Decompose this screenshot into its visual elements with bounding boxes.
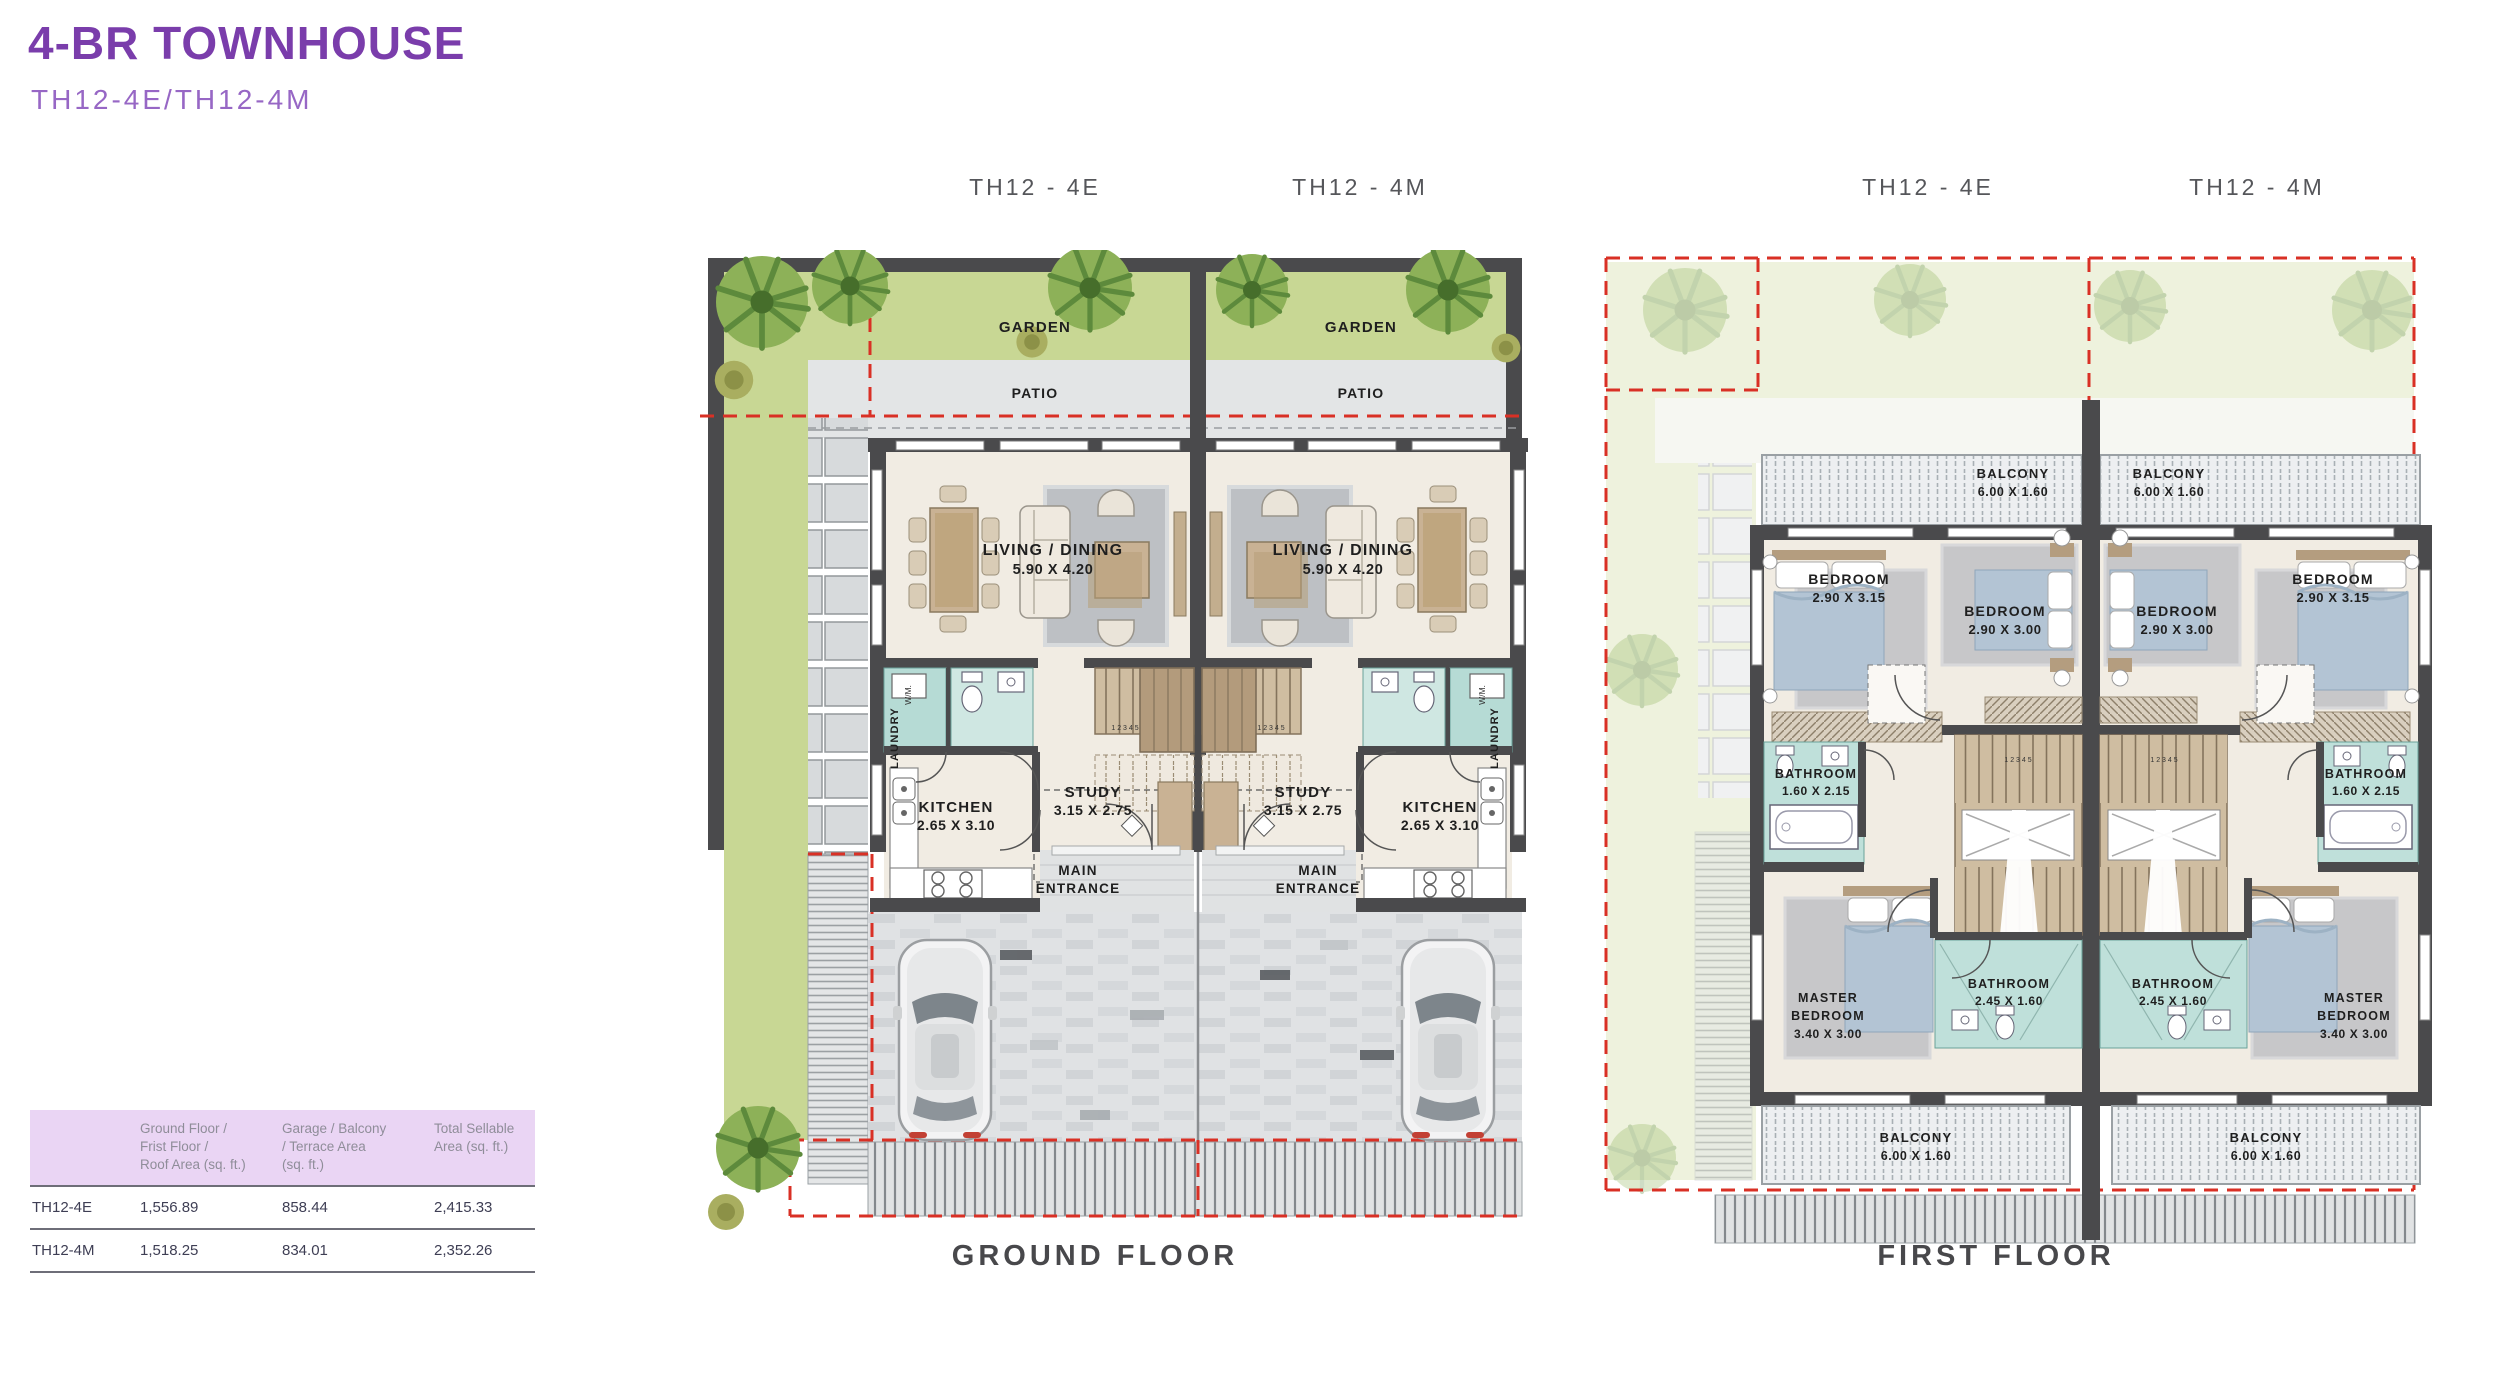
study-dims: 3.15 X 2.75 [1054, 802, 1132, 818]
entrance-label: MAIN [1058, 863, 1097, 878]
balcony-dims: 6.00 X 1.60 [1881, 1149, 1952, 1163]
ghost-walkway-lower [1695, 832, 1752, 1180]
area-table: Ground Floor / Frist Floor / Roof Area (… [30, 1110, 535, 1273]
stair-numbers: 1 2 3 4 5 [2150, 757, 2177, 764]
bedroom-label: BEDROOM [2136, 603, 2218, 619]
garden-label: GARDEN [999, 319, 1071, 336]
boundary-wall-left [708, 258, 724, 850]
total-area-value: 2,415.33 [432, 1199, 535, 1216]
area-table-header: Ground Floor / Frist Floor / Roof Area (… [30, 1110, 535, 1185]
ghost-walkway [1698, 463, 1752, 798]
washer-label: W/M. [903, 685, 913, 705]
master-dims: 3.40 X 3.00 [1794, 1027, 1862, 1041]
bathroom-dims: 2.45 X 1.60 [2139, 994, 2207, 1008]
ground-unit-right-label: TH12 - 4M [1292, 174, 1428, 201]
header-garage-area: Garage / Balcony / Terrace Area (sq. ft.… [280, 1120, 432, 1174]
entrance-label: ENTRANCE [1276, 881, 1361, 896]
kitchen-label: KITCHEN [1402, 799, 1477, 816]
master-label: BEDROOM [2317, 1009, 2391, 1023]
bathroom-dims: 2.45 X 1.60 [1975, 994, 2043, 1008]
garage-area-value: 834.01 [280, 1242, 432, 1259]
ghost-patio [1655, 398, 2414, 463]
master-label: MASTER [2324, 991, 2384, 1005]
bedroom-dims: 2.90 X 3.15 [1812, 590, 1885, 605]
bathroom-label: BATHROOM [2132, 977, 2214, 991]
kitchen-label: KITCHEN [918, 799, 993, 816]
first-floor-plan: BALCONY 6.00 X 1.60 BALCONY 6.00 X 1.60 … [1600, 250, 2445, 1250]
entrance-label: MAIN [1298, 863, 1337, 878]
walkway-slabs [808, 418, 868, 854]
entrance-label: ENTRANCE [1036, 881, 1121, 896]
bedroom-label: BEDROOM [2292, 571, 2374, 587]
header-floor-area: Ground Floor / Frist Floor / Roof Area (… [138, 1120, 280, 1174]
living-dims: 5.90 X 4.20 [1303, 562, 1384, 578]
unit-name: TH12-4M [30, 1242, 138, 1259]
page-title: 4-BR TOWNHOUSE [28, 16, 465, 70]
garden-label: GARDEN [1325, 319, 1397, 336]
stair-numbers: 1 2 3 4 5 [1111, 725, 1138, 732]
bathroom-label: BATHROOM [2325, 767, 2407, 781]
patio-label: PATIO [1338, 385, 1385, 401]
washer-label: W/M. [1477, 685, 1487, 705]
floor-area-value: 1,556.89 [138, 1199, 280, 1216]
ground-floor-caption: GROUND FLOOR [952, 1240, 1238, 1273]
total-area-value: 2,352.26 [432, 1242, 535, 1259]
walkway-lower [808, 854, 868, 1184]
side-garden-strip [724, 272, 808, 1140]
balcony-dims: 6.00 X 1.60 [2134, 485, 2205, 499]
unit-name: TH12-4E [30, 1199, 138, 1216]
balcony-label: BALCONY [1880, 1130, 1953, 1145]
bedroom-dims: 2.90 X 3.15 [2296, 590, 2369, 605]
study-label: STUDY [1275, 784, 1332, 801]
ground-floor-plan: GARDEN GARDEN PATIO PATIO LIVING / DININ… [700, 250, 1530, 1250]
balcony-dims: 6.00 X 1.60 [1978, 485, 2049, 499]
bathroom-label: BATHROOM [1968, 977, 2050, 991]
first-unit-right-label: TH12 - 4M [2189, 174, 2325, 201]
living-dims: 5.90 X 4.20 [1013, 562, 1094, 578]
balcony-dims: 6.00 X 1.60 [2231, 1149, 2302, 1163]
patio-label: PATIO [1012, 385, 1059, 401]
living-label: LIVING / DINING [1273, 542, 1414, 559]
pergola-band [868, 1142, 1522, 1216]
study-dims: 3.15 X 2.75 [1264, 802, 1342, 818]
living-label: LIVING / DINING [983, 542, 1124, 559]
header-total-area: Total Sellable Area (sq. ft.) [432, 1120, 535, 1156]
bedroom-dims: 2.90 X 3.00 [2140, 622, 2213, 637]
floor-area-value: 1,518.25 [138, 1242, 280, 1259]
first-unit-left-label: TH12 - 4E [1862, 174, 1994, 201]
page-subtitle: TH12-4E/TH12-4M [31, 84, 313, 116]
first-floor-caption: FIRST FLOOR [1877, 1240, 2114, 1273]
garage-area-value: 858.44 [280, 1199, 432, 1216]
kitchen-dims: 2.65 X 3.10 [917, 817, 995, 833]
stair-numbers: 1 2 3 4 5 [1257, 725, 1284, 732]
bathroom-dims: 1.60 X 2.15 [2332, 784, 2400, 798]
kitchen-dims: 2.65 X 3.10 [1401, 817, 1479, 833]
bedroom-dims: 2.90 X 3.00 [1968, 622, 2041, 637]
study-label: STUDY [1065, 784, 1122, 801]
bedroom-label: BEDROOM [1964, 603, 2046, 619]
laundry-label: LAUNDRY [889, 707, 901, 769]
ground-unit-left-label: TH12 - 4E [969, 174, 1101, 201]
table-row: TH12-4M 1,518.25 834.01 2,352.26 [30, 1228, 535, 1273]
laundry-label: LAUNDRY [1489, 707, 1501, 769]
master-dims: 3.40 X 3.00 [2320, 1027, 2388, 1041]
table-row: TH12-4E 1,556.89 858.44 2,415.33 [30, 1185, 535, 1228]
balcony-label: BALCONY [2230, 1130, 2303, 1145]
bedroom-label: BEDROOM [1808, 571, 1890, 587]
floorplan-page: 4-BR TOWNHOUSE TH12-4E/TH12-4M TH12 - 4E… [0, 0, 2500, 1400]
bathroom-dims: 1.60 X 2.15 [1782, 784, 1850, 798]
pergola-band [1715, 1195, 2415, 1243]
master-label: BEDROOM [1791, 1009, 1865, 1023]
balcony-label: BALCONY [1977, 466, 2050, 481]
bathroom-label: BATHROOM [1775, 767, 1857, 781]
stair-numbers: 1 2 3 4 5 [2004, 757, 2031, 764]
balcony-label: BALCONY [2133, 466, 2206, 481]
master-label: MASTER [1798, 991, 1858, 1005]
